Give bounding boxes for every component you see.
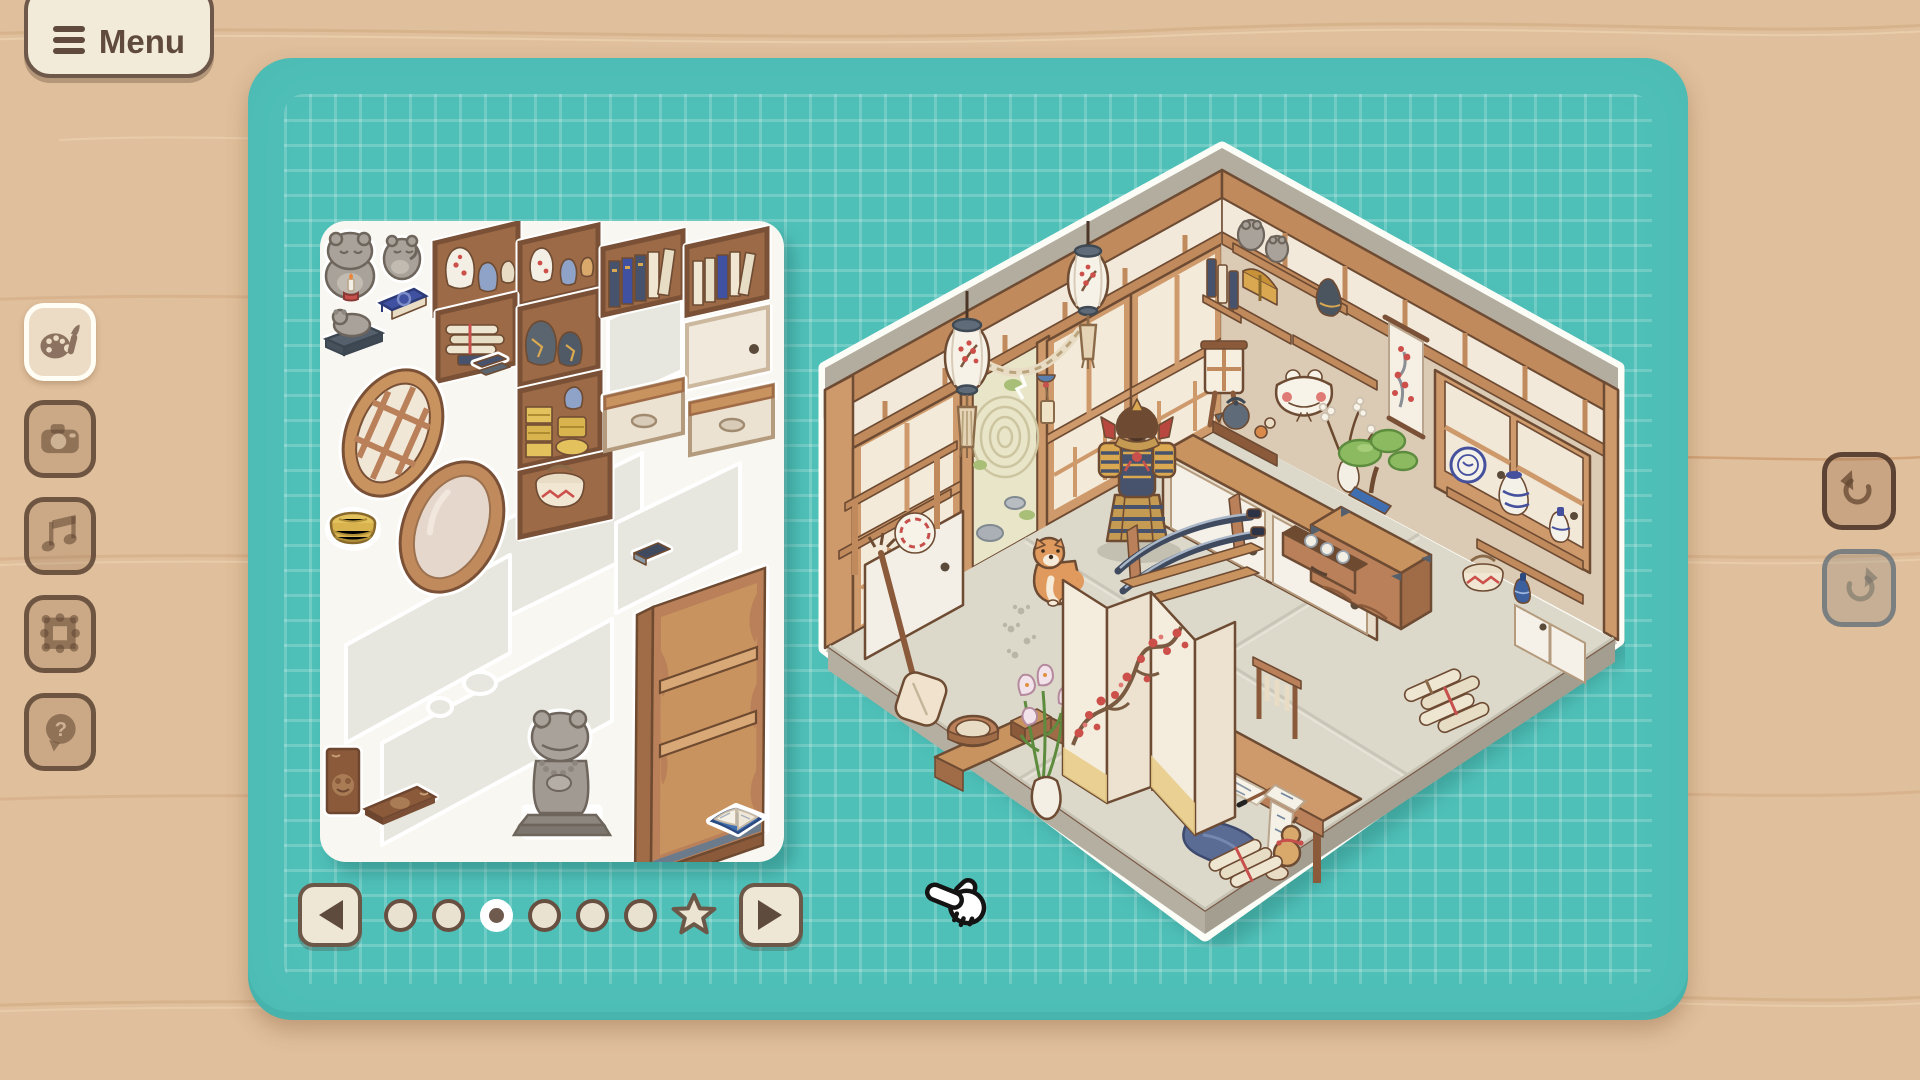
blue-white-plate — [1451, 448, 1485, 482]
blue-book[interactable] — [380, 289, 426, 319]
sidebar-item-decorate[interactable] — [24, 303, 96, 381]
menu-button[interactable]: Menu — [24, 0, 214, 78]
undo-arrow-icon — [1836, 468, 1882, 514]
woven-basket[interactable] — [329, 511, 377, 547]
music-note-icon — [35, 511, 85, 561]
small-books[interactable] — [474, 355, 510, 375]
wooden-tub — [948, 716, 998, 746]
sticker-tray — [320, 221, 784, 862]
stone-frog-statue[interactable] — [326, 309, 382, 355]
camera-icon — [35, 414, 85, 464]
palette-brush-icon — [35, 317, 85, 367]
page-dots — [384, 899, 657, 932]
question-bubble-icon: ? — [35, 707, 85, 757]
shelf-kintsugi-jars[interactable] — [520, 291, 598, 385]
undo-button[interactable] — [1822, 452, 1896, 530]
shelf-books[interactable] — [603, 231, 683, 315]
hanging-scroll[interactable] — [1385, 317, 1427, 437]
svg-text:?: ? — [55, 719, 67, 741]
page-dot-6[interactable] — [624, 899, 657, 932]
page-dot-3[interactable] — [480, 899, 513, 932]
tray-pager — [298, 883, 803, 947]
picture-frame-icon — [35, 609, 85, 659]
left-arrow-icon — [315, 898, 345, 932]
star-page-button[interactable] — [671, 893, 717, 937]
sidebar-item-help[interactable]: ? — [24, 693, 96, 771]
page-dot-2[interactable] — [432, 899, 465, 932]
next-page-button[interactable] — [739, 883, 803, 947]
hamburger-icon — [53, 26, 85, 54]
sidebar-item-music[interactable] — [24, 497, 96, 575]
menu-label: Menu — [99, 25, 185, 58]
room-diorama[interactable] — [815, 135, 1625, 947]
drawer-2[interactable] — [690, 385, 773, 455]
shelf-books-2[interactable] — [687, 229, 767, 315]
sidebar-item-camera[interactable] — [24, 400, 96, 478]
frog-candle-figurine[interactable] — [326, 233, 374, 300]
drawer[interactable] — [605, 379, 683, 451]
page-dot-1[interactable] — [384, 899, 417, 932]
game-screen: { "menu_button": { "label": "Menu", "ico… — [0, 0, 1920, 1080]
page-dot-5[interactable] — [576, 899, 609, 932]
shelf-gold-boxes[interactable] — [520, 373, 600, 467]
sidebar-item-frames[interactable] — [24, 595, 96, 673]
standing-frog-book[interactable] — [327, 749, 359, 813]
shelf-basket[interactable] — [520, 453, 610, 537]
sliding-door-panel[interactable] — [687, 307, 768, 387]
page-dot-4[interactable] — [528, 899, 561, 932]
redo-arrow-icon — [1836, 565, 1882, 611]
prev-page-button[interactable] — [298, 883, 362, 947]
star-icon — [671, 893, 717, 937]
right-arrow-icon — [756, 898, 786, 932]
small-frog-figurine[interactable] — [384, 236, 420, 279]
redo-button[interactable] — [1822, 549, 1896, 627]
